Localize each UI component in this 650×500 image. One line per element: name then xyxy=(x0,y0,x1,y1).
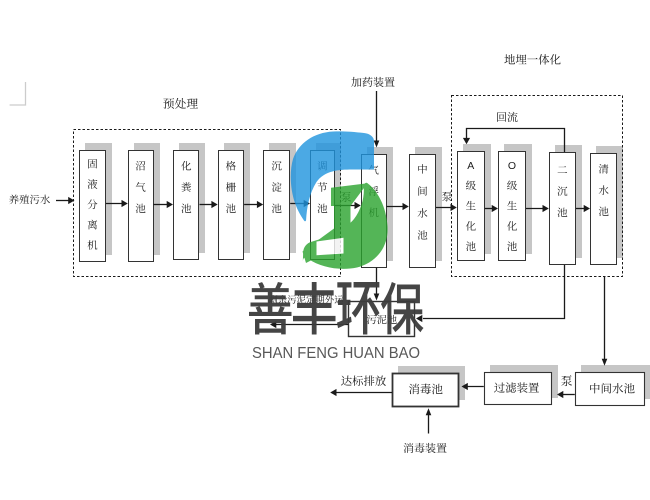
svg-text:SHAN FENG HUAN BAO: SHAN FENG HUAN BAO xyxy=(252,345,420,362)
svg-text:O: O xyxy=(508,160,516,172)
svg-text:A: A xyxy=(467,160,474,172)
